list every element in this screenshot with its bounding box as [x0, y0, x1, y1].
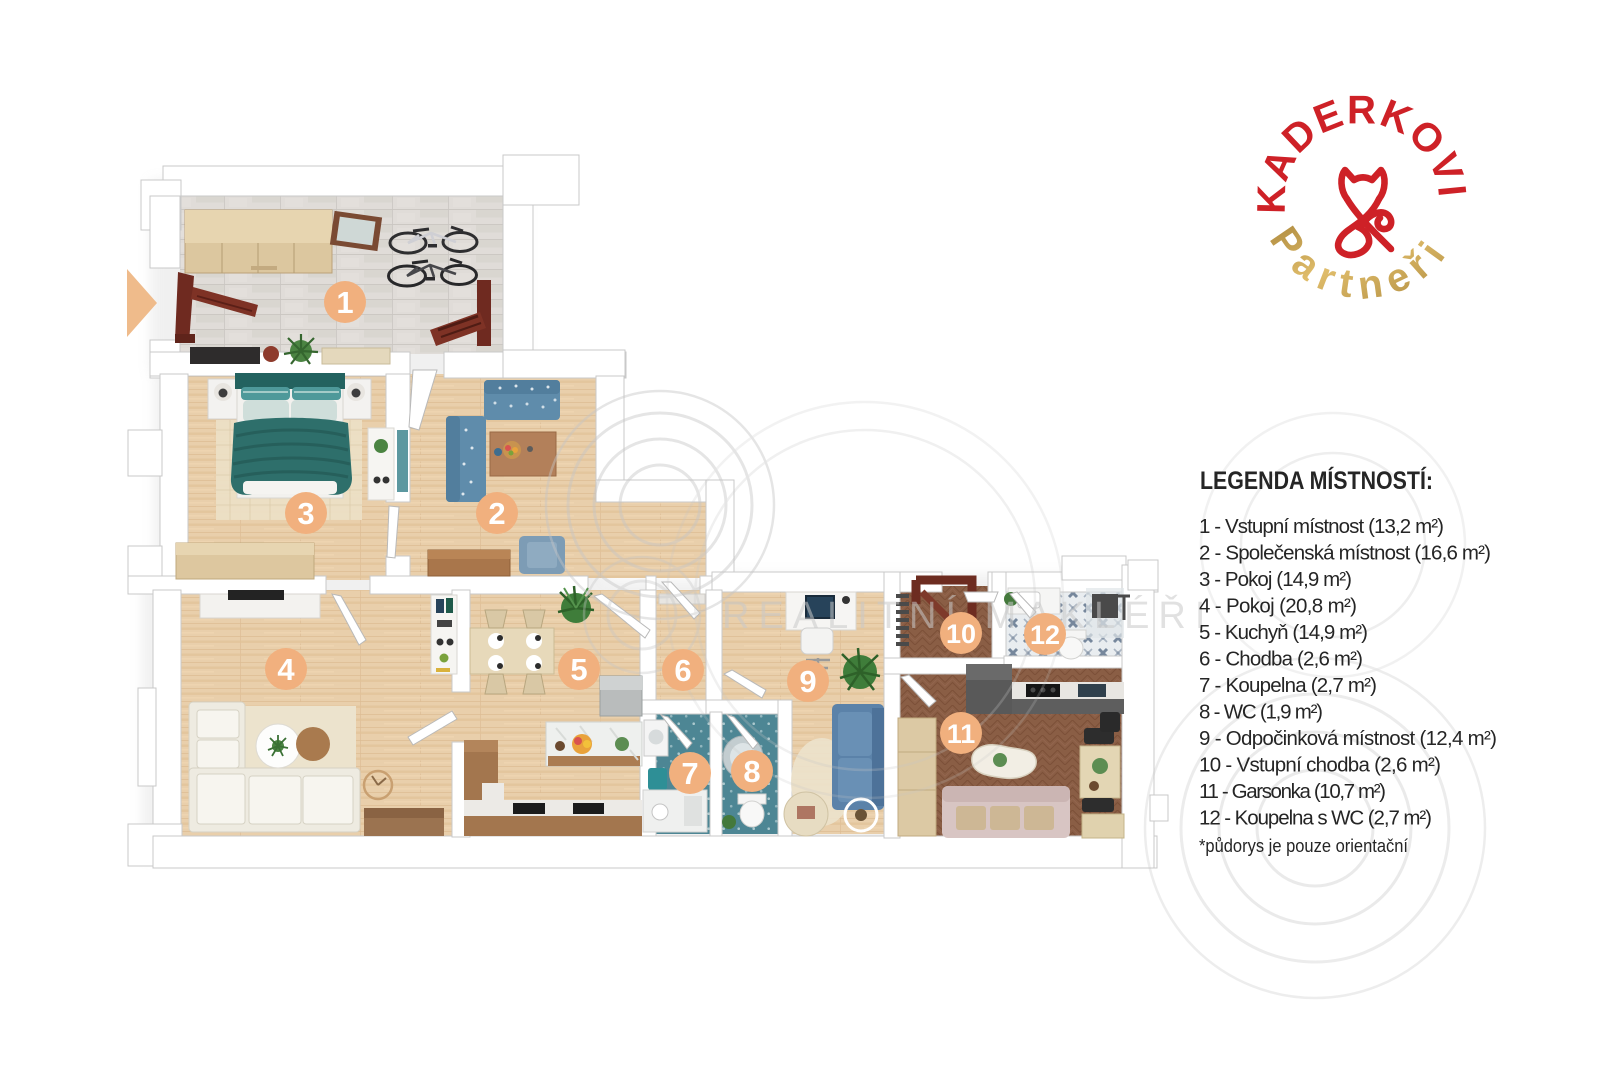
- svg-text:8 - WC (1,9 m²): 8 - WC (1,9 m²): [1199, 701, 1323, 724]
- svg-text:LEGENDA MÍSTNOSTÍ:: LEGENDA MÍSTNOSTÍ:: [1200, 466, 1433, 495]
- svg-text:7 - Koupelna (2,7 m²): 7 - Koupelna (2,7 m²): [1199, 674, 1377, 697]
- svg-text:3 - Pokoj (14,9 m²): 3 - Pokoj (14,9 m²): [1199, 568, 1352, 591]
- svg-text:4: 4: [277, 652, 295, 687]
- svg-text:4 - Pokoj (20,8 m²): 4 - Pokoj (20,8 m²): [1199, 595, 1357, 618]
- svg-text:11 - Garsonka (10,7 m²): 11 - Garsonka (10,7 m²): [1199, 780, 1386, 803]
- svg-text:KADERKOVI: KADERKOVI: [1250, 88, 1474, 214]
- svg-text:5 - Kuchyň (14,9 m²): 5 - Kuchyň (14,9 m²): [1199, 621, 1368, 644]
- svg-text:5: 5: [570, 652, 587, 687]
- svg-text:1: 1: [336, 285, 353, 320]
- svg-text:9: 9: [799, 664, 816, 699]
- svg-text:9 - Odpočinková místnost (12,4: 9 - Odpočinková místnost (12,4 m²): [1199, 727, 1497, 750]
- svg-text:*půdorys je pouze orientační: *půdorys je pouze orientační: [1199, 836, 1408, 856]
- svg-text:8: 8: [743, 754, 760, 789]
- svg-text:6 - Chodba (2,6 m²): 6 - Chodba (2,6 m²): [1199, 648, 1363, 671]
- svg-text:3: 3: [297, 496, 314, 531]
- svg-text:2: 2: [488, 496, 505, 531]
- svg-text:Partneři: Partneři: [1261, 219, 1459, 308]
- svg-text:6: 6: [674, 653, 691, 688]
- svg-text:12 - Koupelna s WC (2,7 m²): 12 - Koupelna s WC (2,7 m²): [1199, 807, 1432, 830]
- svg-text:10: 10: [946, 619, 976, 649]
- svg-text:2 - Společenská místnost (16,6: 2 - Společenská místnost (16,6 m²): [1199, 542, 1491, 565]
- svg-text:10 - Vstupní chodba (2,6 m²): 10 - Vstupní chodba (2,6 m²): [1199, 754, 1441, 777]
- svg-text:11: 11: [947, 719, 976, 749]
- svg-text:12: 12: [1030, 620, 1060, 650]
- svg-text:7: 7: [681, 756, 698, 791]
- svg-text:1 - Vstupní místnost (13,2 m²): 1 - Vstupní místnost (13,2 m²): [1199, 515, 1444, 538]
